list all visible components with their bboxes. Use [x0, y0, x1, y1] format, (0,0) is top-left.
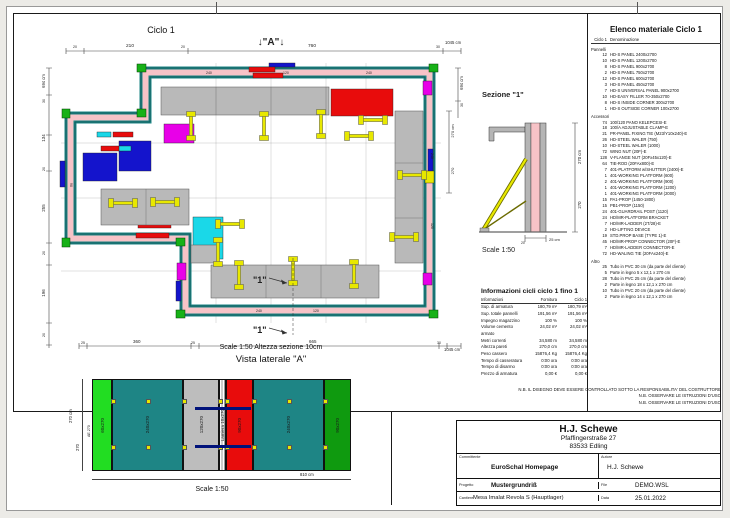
svg-text:210: 210: [126, 43, 134, 49]
connector-dot: [225, 399, 230, 404]
company-address1: Pfaffingerstraße 27: [457, 435, 720, 443]
side-panel-label: 90x270: [335, 418, 340, 433]
info-row-fornitura: 100 %: [527, 318, 557, 325]
info-row-ciclo: 24,02 m³: [557, 324, 587, 337]
svg-text:20: 20: [42, 167, 46, 171]
info-row: Volume cemento armato24,02 m³24,02 m³: [481, 324, 587, 337]
autore-label: Autore: [601, 455, 612, 459]
file-value: DEMO.WSL: [635, 482, 669, 489]
svg-text:20: 20: [42, 251, 46, 255]
company-header: H.J. Schewe Pfaffingerstraße 27 83533 Ed…: [457, 421, 720, 453]
info-row-label: Metri correnti: [481, 338, 527, 345]
material-item-qty: 72: [591, 251, 607, 257]
progetto-label: Progetto: [459, 483, 473, 487]
info-table: Informazioni cicli ciclo 1 fino 1 Inform…: [481, 288, 587, 378]
material-list-header: Ciclo 1 Denominazione: [591, 37, 721, 44]
data-cell: Data 25.01.2022: [599, 495, 720, 502]
bottom-strip-divider: [391, 412, 392, 505]
autore-value: H.J. Schewe: [607, 464, 720, 471]
material-item-qty: 1: [591, 106, 607, 112]
company-name: H.J. Schewe: [457, 424, 720, 435]
cantiere-label: Cantiere: [459, 496, 473, 500]
file-label: File: [601, 483, 607, 487]
side-view-title: Vista laterale "A": [141, 354, 401, 365]
side-panel: Lamiera 10x270: [219, 379, 226, 471]
material-item-qty: 2: [591, 294, 607, 300]
info-row: Impegno magazzino100 %100 %: [481, 318, 587, 325]
cantiere-value: Mesa Imalat Revola S (Hauptlager): [473, 495, 564, 501]
info-row-fornitura: 180,79 m²: [527, 304, 557, 311]
connector-dot: [111, 445, 116, 450]
info-row: Sup. di armatura180,79 m²180,79 m²: [481, 304, 587, 311]
tie-bar: [195, 445, 251, 448]
info-row-ciclo: 15876,4 Kg: [557, 351, 587, 358]
svg-text:196: 196: [41, 289, 46, 297]
connector-dot: [111, 399, 116, 404]
svg-text:694 cm: 694 cm: [459, 76, 464, 90]
info-row-fornitura: 0,00 €: [527, 371, 557, 378]
material-item-name: Parte in legno 14 x 12,1 x 270 cm: [610, 294, 672, 300]
connector-dot: [218, 399, 223, 404]
section-title: Sezione "1": [482, 90, 524, 99]
note: N.B. OSSERVARE LE ISTRUZIONI D'USO: [481, 400, 721, 406]
wall-dimension-label: 240: [206, 71, 212, 75]
data-label: Data: [601, 496, 609, 500]
material-header-qty: Ciclo 1: [591, 37, 607, 42]
svg-text:255: 255: [41, 204, 46, 212]
connector-dot: [323, 445, 328, 450]
material-item: 2Parte in legno 14 x 12,1 x 270 cm: [591, 294, 721, 300]
side-view-bottom-dim: [92, 479, 351, 480]
section-height-total: 270 cm: [577, 150, 582, 165]
svg-text:1045 cm: 1045 cm: [445, 40, 462, 45]
side-panel: 120x270: [183, 379, 219, 471]
progetto-cell: Progetto Mustergrundriß: [457, 482, 599, 489]
material-header-name: Denominazione: [610, 37, 639, 42]
data-value: 25.01.2022: [635, 495, 666, 502]
material-list: Elenco materiale Ciclo 1 Ciclo 1 Denomin…: [591, 25, 721, 300]
svg-text:30: 30: [437, 341, 441, 345]
svg-text:"1": "1": [253, 325, 267, 335]
connector-dot: [182, 445, 187, 450]
info-row-ciclo: 270,0 cm: [557, 344, 587, 351]
info-row-label: Prezzo di armatura: [481, 371, 527, 378]
svg-text:↓"A"↓: ↓"A"↓: [258, 37, 285, 48]
side-view-width-total: 810 cm: [300, 472, 314, 477]
section-drawing: Sezione "1" 270 cm 270 20 25 cm Scale 1:…: [479, 87, 585, 255]
info-row-label: Altezza pareti: [481, 344, 527, 351]
section-marker-1-bottom: "1": [253, 325, 287, 335]
side-panel-label: 60x270: [100, 418, 105, 433]
section-props: [480, 159, 526, 232]
svg-text:20: 20: [42, 333, 46, 337]
side-view-strip-wrap: 60x270240x270120x270Lamiera 10x27090x270…: [92, 379, 351, 471]
info-row-label: Impegno magazzino: [481, 318, 527, 325]
side-view-edge-label: AE 270: [87, 425, 91, 437]
side-panel-label: 240x270: [145, 416, 150, 433]
connector-dot: [252, 399, 257, 404]
material-list-divider: [587, 13, 588, 412]
info-row: Altezza pareti270,0 cm270,0 cm: [481, 344, 587, 351]
section-wall: [489, 123, 546, 232]
svg-text:"1": "1": [253, 275, 267, 285]
side-panel: 90x270: [226, 379, 253, 471]
svg-text:20: 20: [73, 45, 77, 49]
wall-dimension-label: 240: [256, 309, 262, 313]
info-row-ciclo: 34,580 m: [557, 338, 587, 345]
wall-dimension-label: 120: [283, 71, 289, 75]
wall-dimension-label: 240: [366, 71, 372, 75]
material-group-title: Pannelli: [591, 47, 721, 52]
committente-label: Committente: [459, 455, 481, 459]
info-row-label: Sup. di armatura: [481, 304, 527, 311]
autore-cell: Autore H.J. Schewe: [599, 454, 720, 478]
drawing-sheet: Ciclo 1: [6, 6, 723, 511]
svg-text:270: 270: [450, 167, 455, 174]
file-cell: File DEMO.WSL: [599, 482, 720, 489]
side-view-height: 270: [75, 444, 80, 451]
title-block: H.J. Schewe Pfaffingerstraße 27 83533 Ed…: [456, 420, 721, 506]
svg-text:20: 20: [181, 45, 185, 49]
side-panel-label: 120x270: [199, 416, 204, 433]
info-row-ciclo: 0,00 €: [557, 371, 587, 378]
info-col-ciclo: Ciclo 1: [557, 297, 587, 303]
side-panel-label: 240x270: [286, 416, 291, 433]
side-panel-label: 90x270: [237, 418, 242, 433]
info-table-title: Informazioni cicli ciclo 1 fino 1: [481, 288, 587, 295]
titleblock-row-client: Committente EuroSchal Homepage Autore H.…: [457, 453, 720, 478]
material-item: 72HD-WALING TIE (20FAx240)-E: [591, 251, 721, 257]
svg-text:30: 30: [436, 45, 440, 49]
info-table-header: Informazioni Fornitura Ciclo 1: [481, 297, 587, 304]
material-group-title: Accessori: [591, 114, 721, 119]
material-list-items: Pannelli12HD-S PANEL 2400x270010HD-S PAN…: [591, 47, 721, 301]
side-view: 270 cm 270 AE 270 60x270240x270120x270La…: [62, 371, 362, 517]
company-address2: 83533 Edling: [457, 443, 720, 451]
material-list-title: Elenco materiale Ciclo 1: [591, 25, 721, 34]
svg-text:1045 cm: 1045 cm: [444, 347, 461, 352]
side-view-scale: Scale 1:50: [62, 486, 362, 493]
material-group-title: Altro: [591, 259, 721, 264]
section-height: 270: [577, 201, 582, 209]
svg-text:270 cm: 270 cm: [450, 124, 455, 138]
info-row-fornitura: 24,02 m³: [527, 324, 557, 337]
section-base-small: 20: [521, 241, 525, 245]
info-row-ciclo: 0:00 ora: [557, 364, 587, 371]
info-row: Prezzo di armatura0,00 €0,00 €: [481, 371, 587, 378]
info-row-ciclo: 100 %: [557, 318, 587, 325]
info-table-rows: Sup. di armatura180,79 m²180,79 m²Sup. t…: [481, 304, 587, 377]
cantiere-cell: Cantiere Mesa Imalat Revola S (Hauptlage…: [457, 495, 599, 501]
plan-scale-note: Scale 1:50 Altezza sezione 10cm: [141, 344, 401, 351]
svg-text:30: 30: [42, 99, 46, 103]
material-item-name: HD-S OUTSIDE CORNER 100x2700: [610, 106, 679, 112]
info-row-fornitura: 191,56 m²: [527, 311, 557, 318]
info-row: Sup. totale pannelli191,56 m²191,56 m²: [481, 311, 587, 318]
wall-dimension-label: 240: [430, 153, 434, 159]
info-col-informazioni: Informazioni: [481, 297, 527, 303]
svg-text:760: 760: [308, 43, 316, 49]
fold-mark: [637, 2, 638, 14]
info-col-fornitura: Fornitura: [527, 297, 557, 303]
notes: N.B. IL DISEGNO DEVE ESSERE CONTROLLATO …: [481, 387, 721, 406]
wall-dimension-label: 90: [69, 183, 73, 187]
wall-dimension-label: 120: [430, 223, 434, 229]
connector-dot: [252, 445, 257, 450]
side-panel: 240x270: [253, 379, 324, 471]
svg-text:25: 25: [81, 341, 85, 345]
info-row-label: Volume cemento armato: [481, 324, 527, 337]
committente-value: EuroSchal Homepage: [491, 464, 598, 471]
side-panel: 90x270: [324, 379, 351, 471]
connector-dot: [146, 445, 151, 450]
plan-drawing: 20 210 20 760 30 1045 cm 694 cm 30 134 2…: [21, 23, 471, 353]
info-row-fornitura: 15876,4 Kg: [527, 351, 557, 358]
connector-dot: [287, 445, 292, 450]
info-row-ciclo: 0:00 ora: [557, 358, 587, 365]
info-row-fornitura: 34,580 m: [527, 338, 557, 345]
wall-dimension-label: 120: [313, 309, 319, 313]
info-row-fornitura: 0:00 ora: [527, 364, 557, 371]
info-row-fornitura: 270,0 cm: [527, 344, 557, 351]
material-item: 1HD-S OUTSIDE CORNER 100x2700: [591, 106, 721, 112]
side-view-height-total: 270 cm: [68, 409, 73, 423]
svg-text:30: 30: [460, 103, 464, 107]
connector-dot: [287, 399, 292, 404]
info-row-ciclo: 191,56 m²: [557, 311, 587, 318]
tie-bar: [195, 407, 251, 410]
section-marker-a: ↓"A"↓: [258, 37, 285, 48]
progetto-value: Mustergrundriß: [491, 482, 537, 489]
connector-dot: [323, 399, 328, 404]
info-row: Tempo di casseratura0:00 ora0:00 ora: [481, 358, 587, 365]
titleblock-row-site: Cantiere Mesa Imalat Revola S (Hauptlage…: [457, 491, 720, 504]
connector-dot: [182, 399, 187, 404]
section-base: 25 cm: [549, 237, 561, 242]
side-panel: 60x270: [92, 379, 112, 471]
svg-text:134: 134: [41, 134, 46, 142]
committente-cell: Committente EuroSchal Homepage: [457, 454, 599, 478]
info-row-label: Tempo di casseratura: [481, 358, 527, 365]
fold-mark: [216, 2, 217, 14]
side-panel-label: Lamiera 10x270: [220, 409, 225, 441]
info-row-label: Tempo di disarmo: [481, 364, 527, 371]
info-row-label: Sup. totale pannelli: [481, 311, 527, 318]
info-row-fornitura: 0:00 ora: [527, 358, 557, 365]
info-row: Metri correnti34,580 m34,580 m: [481, 338, 587, 345]
info-row: Tempo di disarmo0:00 ora0:00 ora: [481, 364, 587, 371]
material-item-name: HD-WALING TIE (20FAx240)-E: [610, 251, 668, 257]
svg-text:360: 360: [133, 339, 141, 344]
titleblock-row-project: Progetto Mustergrundriß File DEMO.WSL: [457, 478, 720, 491]
info-row-label: Peso cassero: [481, 351, 527, 358]
svg-text:694 cm: 694 cm: [41, 74, 46, 88]
connector-dot: [146, 399, 151, 404]
side-view-dim-line: [82, 379, 83, 471]
section-scale: Scale 1:50: [482, 247, 515, 254]
side-view-strip: 60x270240x270120x270Lamiera 10x27090x270…: [92, 379, 351, 471]
info-row-ciclo: 180,79 m²: [557, 304, 587, 311]
info-row: Peso cassero15876,4 Kg15876,4 Kg: [481, 351, 587, 358]
side-panel: 240x270: [112, 379, 183, 471]
